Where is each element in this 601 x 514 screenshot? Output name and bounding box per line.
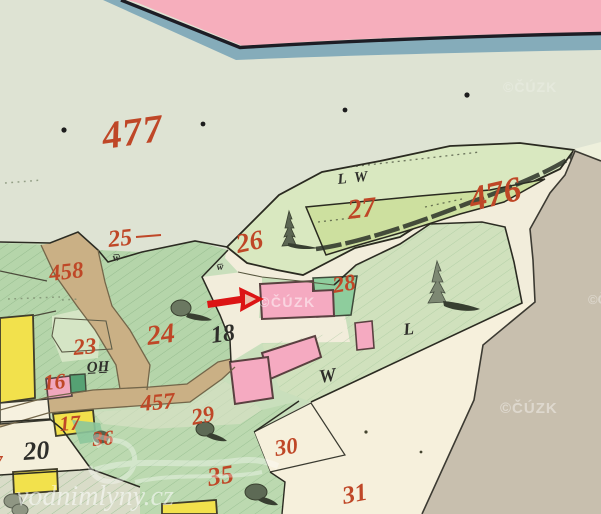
svg-text:25: 25	[106, 225, 134, 253]
svg-text:18: 18	[209, 320, 236, 349]
svg-text:24: 24	[144, 318, 177, 352]
svg-text:©ČÚZK: ©ČÚZK	[503, 78, 557, 95]
svg-text:©ČÚZK: ©ČÚZK	[500, 399, 558, 417]
svg-text:30: 30	[272, 433, 300, 462]
svg-text:vodnimlyny.cz: vodnimlyny.cz	[16, 481, 174, 512]
svg-text:O̲H̲: O̲H̲	[86, 359, 111, 376]
svg-text:L: L	[401, 319, 414, 339]
svg-text:457: 457	[138, 388, 177, 416]
svg-text:16: 16	[42, 368, 66, 395]
svg-text:©ČÚZK: ©ČÚZK	[259, 293, 316, 310]
svg-text:28: 28	[330, 269, 358, 298]
svg-text:17: 17	[58, 410, 83, 436]
svg-text:L W: L W	[336, 169, 370, 188]
svg-text:31: 31	[339, 479, 370, 510]
svg-text:27: 27	[345, 192, 379, 226]
svg-text:w̅: w̅	[216, 261, 224, 273]
svg-text:23: 23	[71, 333, 97, 360]
svg-text:20: 20	[21, 435, 50, 466]
svg-text:©Č: ©Č	[588, 292, 601, 307]
svg-text:458: 458	[47, 257, 86, 286]
svg-text:477: 477	[98, 107, 166, 158]
